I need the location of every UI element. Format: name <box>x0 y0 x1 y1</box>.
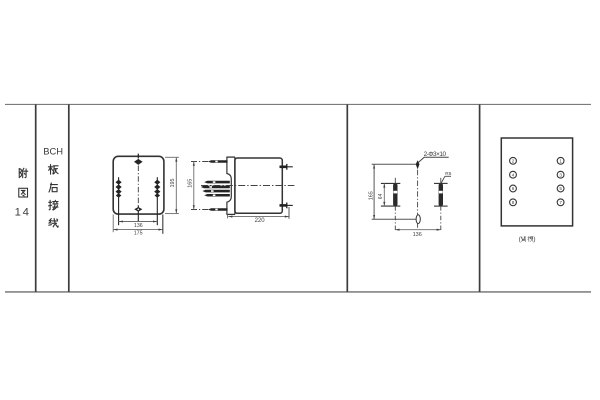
svg-text:1: 1 <box>559 159 562 164</box>
svg-text:136: 136 <box>134 223 143 229</box>
svg-text:6: 6 <box>512 186 515 191</box>
svg-text:14: 14 <box>15 207 31 219</box>
svg-text:BCH: BCH <box>43 145 63 156</box>
svg-text:165: 165 <box>188 179 194 188</box>
svg-text:136: 136 <box>413 232 422 238</box>
svg-text:3: 3 <box>559 172 562 177</box>
svg-text:4: 4 <box>512 172 515 177</box>
svg-text:64: 64 <box>378 193 384 199</box>
svg-text:195: 195 <box>170 179 176 188</box>
svg-text:165: 165 <box>368 191 374 200</box>
svg-text:220: 220 <box>255 218 266 224</box>
svg-text:7: 7 <box>559 200 562 205</box>
svg-text:8: 8 <box>512 200 515 205</box>
svg-text:2: 2 <box>512 159 515 164</box>
svg-text:): ) <box>533 236 535 243</box>
svg-text:2-Φ3×10: 2-Φ3×10 <box>424 151 447 158</box>
svg-text:175: 175 <box>134 231 143 237</box>
svg-text:5: 5 <box>559 186 562 191</box>
